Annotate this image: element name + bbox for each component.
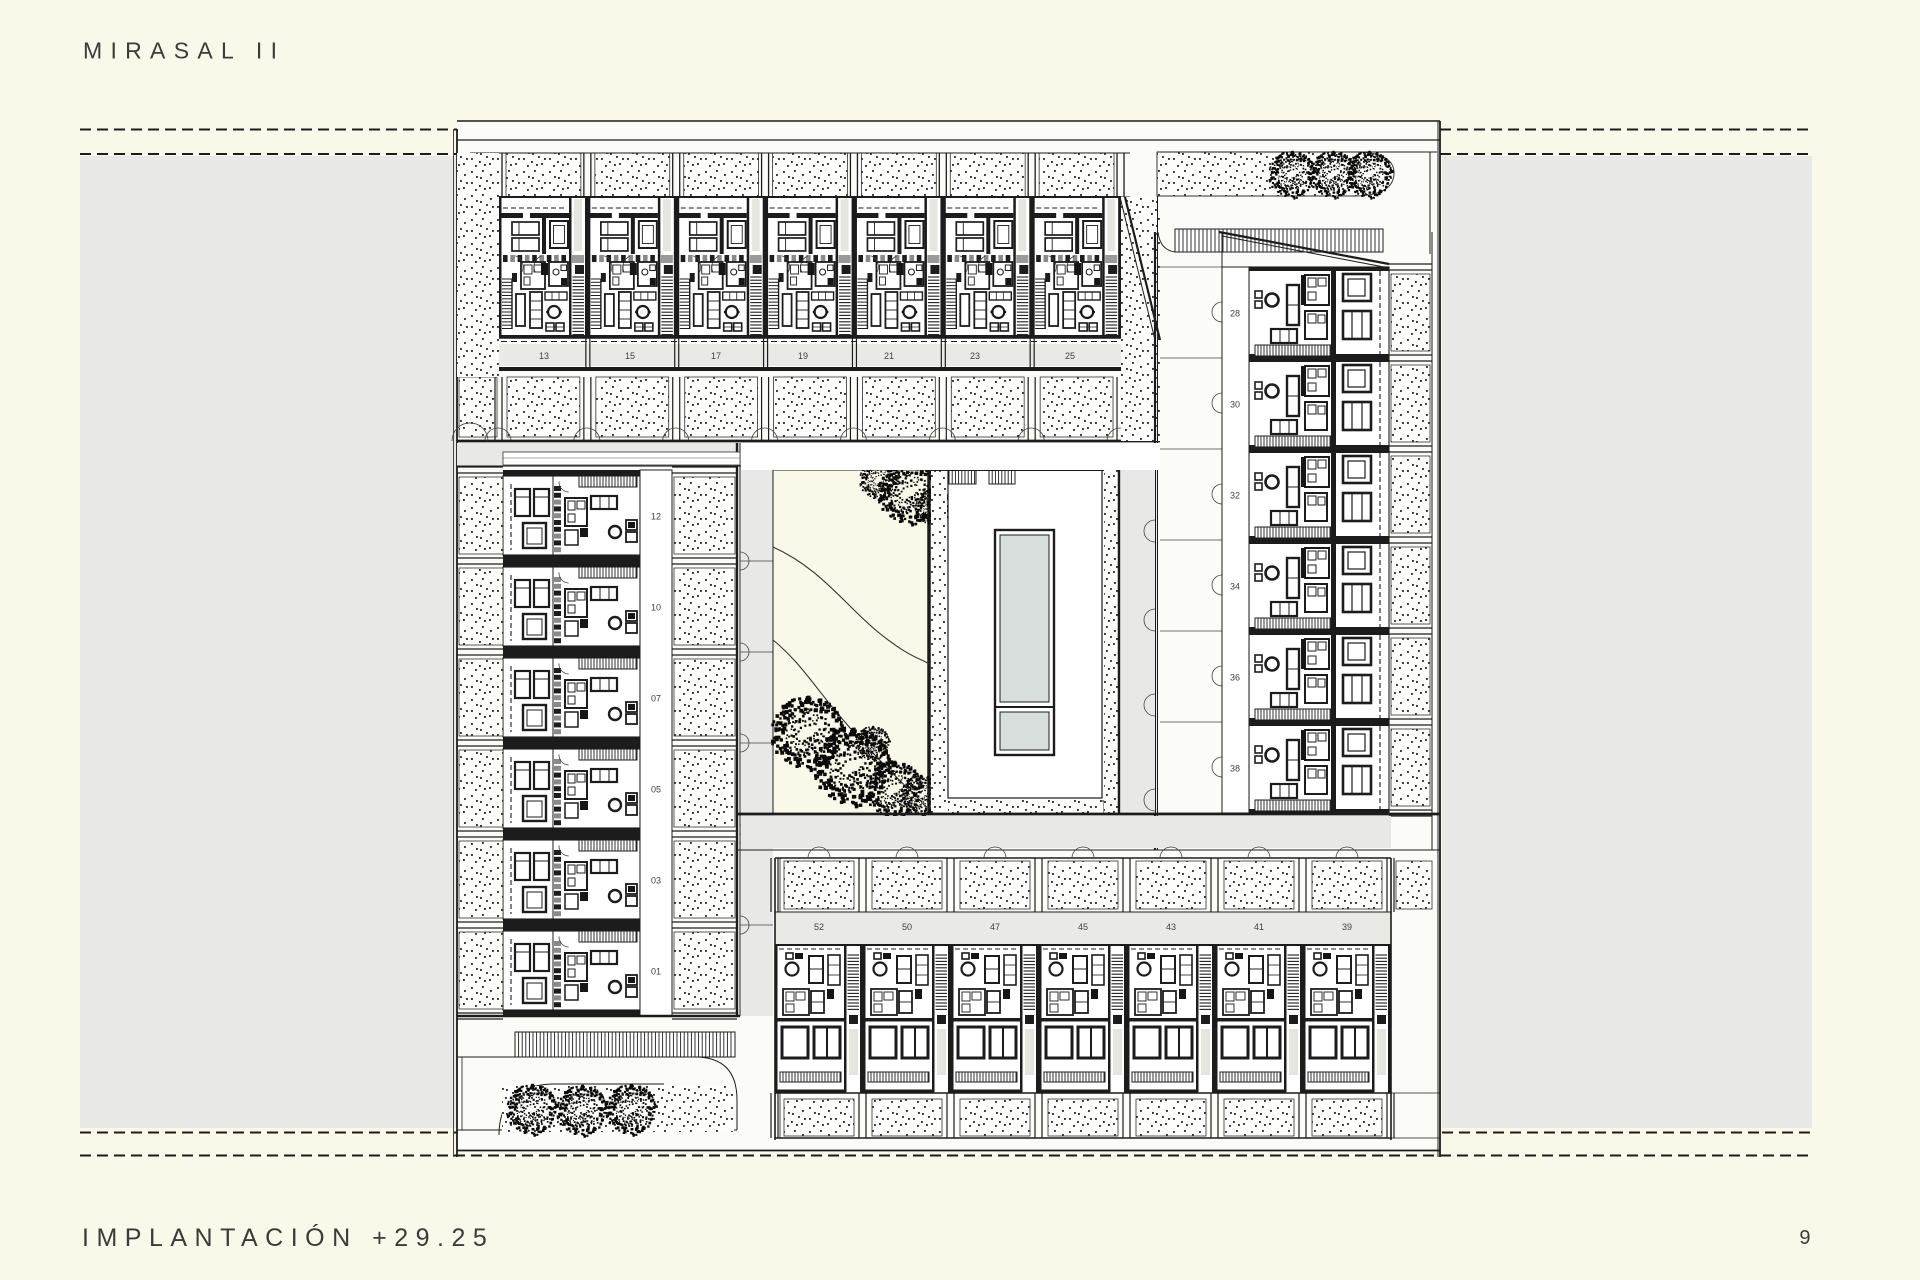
svg-text:12: 12 <box>651 512 661 522</box>
svg-text:45: 45 <box>1078 922 1088 932</box>
svg-text:36: 36 <box>1230 673 1240 683</box>
svg-text:15: 15 <box>625 351 635 361</box>
svg-text:28: 28 <box>1230 309 1240 319</box>
svg-text:13: 13 <box>539 351 549 361</box>
svg-text:MIRASAL II: MIRASAL II <box>83 38 285 64</box>
svg-text:43: 43 <box>1166 922 1176 932</box>
svg-text:05: 05 <box>651 785 661 795</box>
svg-text:23: 23 <box>970 351 980 361</box>
svg-text:38: 38 <box>1230 764 1240 774</box>
svg-text:25: 25 <box>1065 351 1075 361</box>
svg-text:07: 07 <box>651 694 661 704</box>
svg-text:52: 52 <box>814 922 824 932</box>
svg-text:03: 03 <box>651 876 661 886</box>
svg-text:9: 9 <box>1799 1227 1810 1249</box>
svg-text:17: 17 <box>711 351 721 361</box>
svg-text:39: 39 <box>1342 922 1352 932</box>
svg-text:47: 47 <box>990 922 1000 932</box>
svg-text:50: 50 <box>902 922 912 932</box>
svg-text:34: 34 <box>1230 582 1240 592</box>
svg-text:19: 19 <box>798 351 808 361</box>
svg-text:30: 30 <box>1230 400 1240 410</box>
svg-text:21: 21 <box>884 351 894 361</box>
svg-text:IMPLANTACIÓN +29.25: IMPLANTACIÓN +29.25 <box>82 1223 494 1252</box>
svg-text:32: 32 <box>1230 491 1240 501</box>
svg-text:41: 41 <box>1254 922 1264 932</box>
svg-text:01: 01 <box>651 967 661 977</box>
svg-text:10: 10 <box>651 603 661 613</box>
